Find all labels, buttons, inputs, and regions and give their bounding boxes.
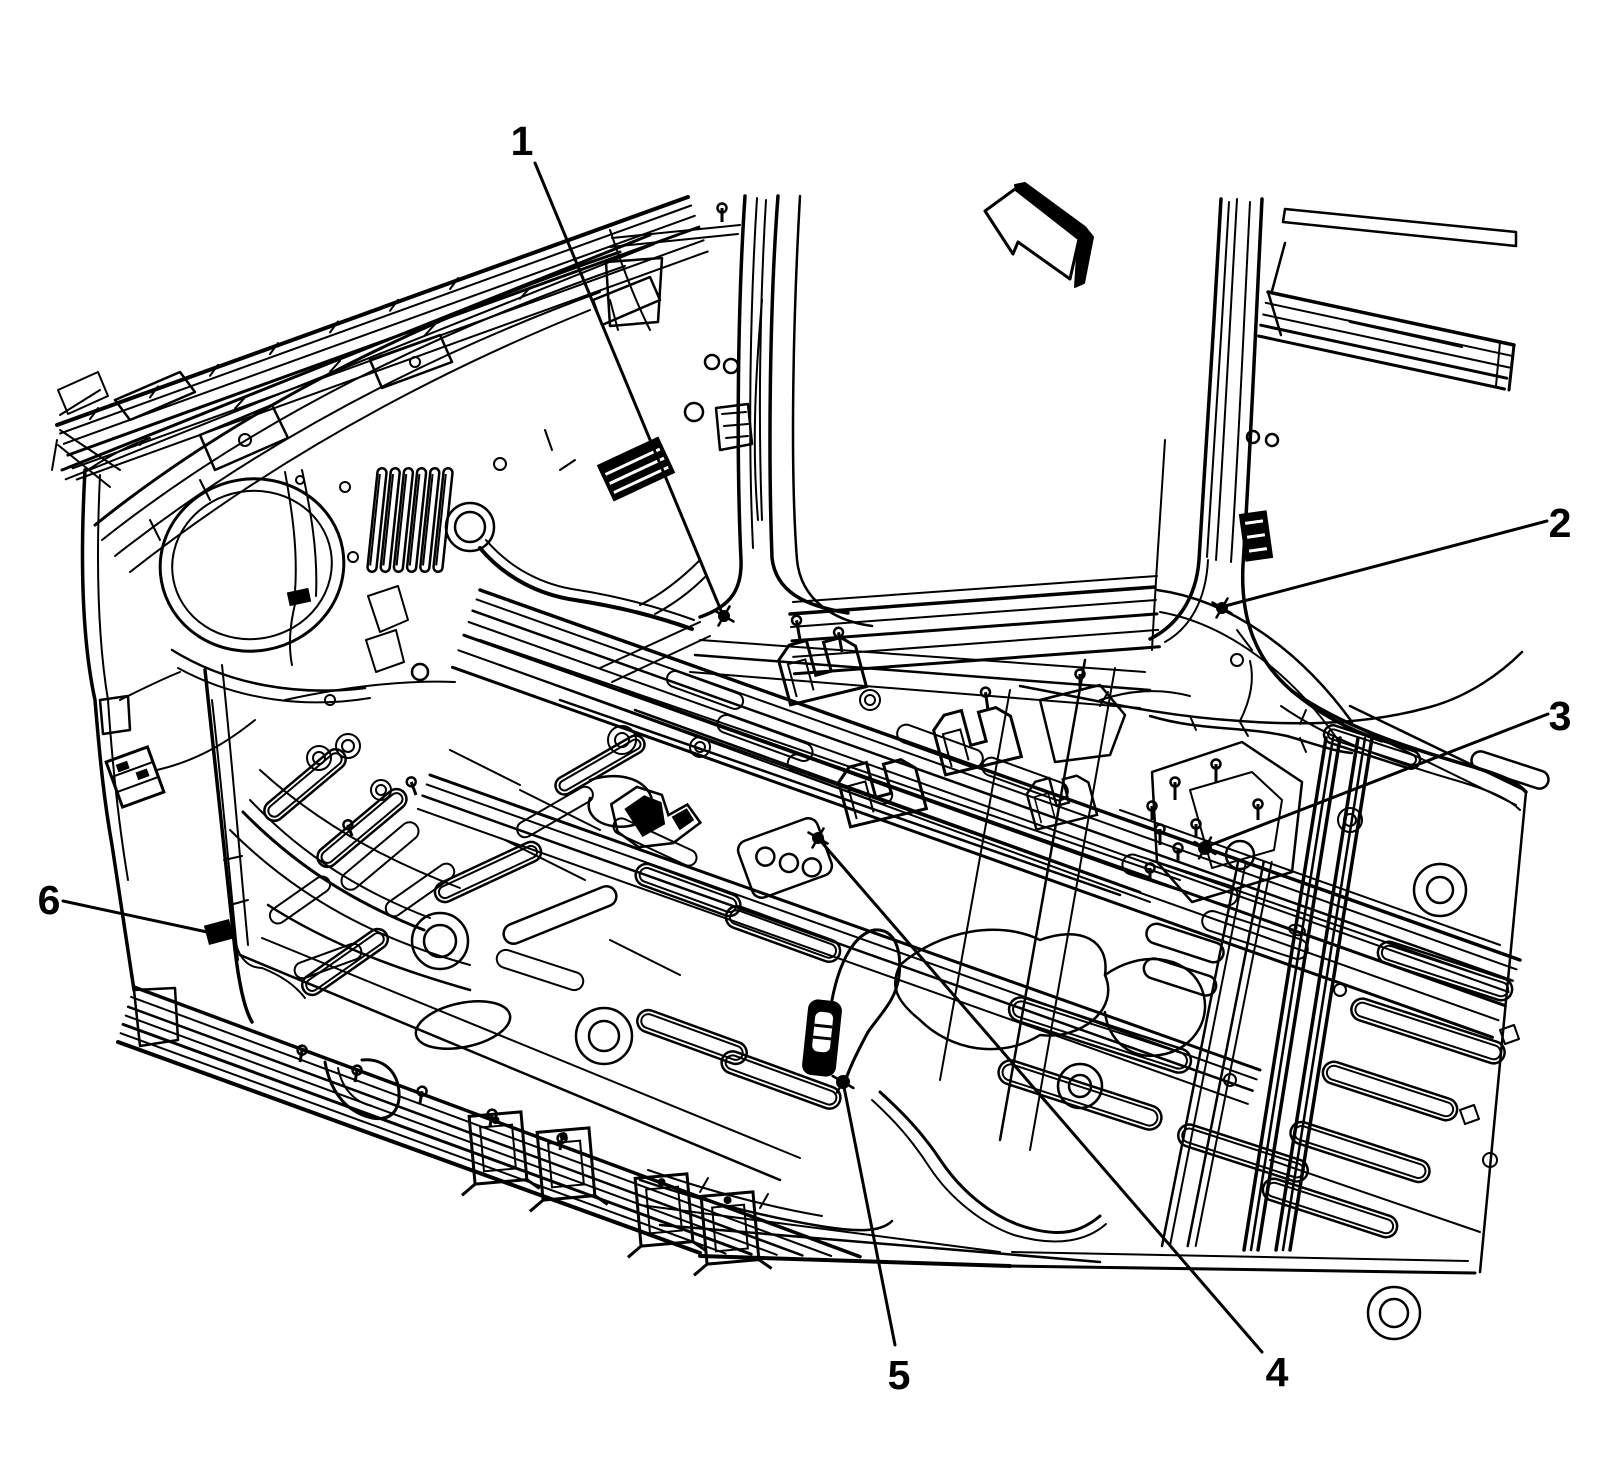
svg-text:3: 3 <box>1549 693 1572 739</box>
svg-text:2: 2 <box>1549 500 1572 546</box>
svg-text:6: 6 <box>38 877 61 923</box>
svg-text:4: 4 <box>1266 1349 1289 1395</box>
svg-text:1: 1 <box>511 118 534 164</box>
svg-text:5: 5 <box>888 1352 911 1398</box>
